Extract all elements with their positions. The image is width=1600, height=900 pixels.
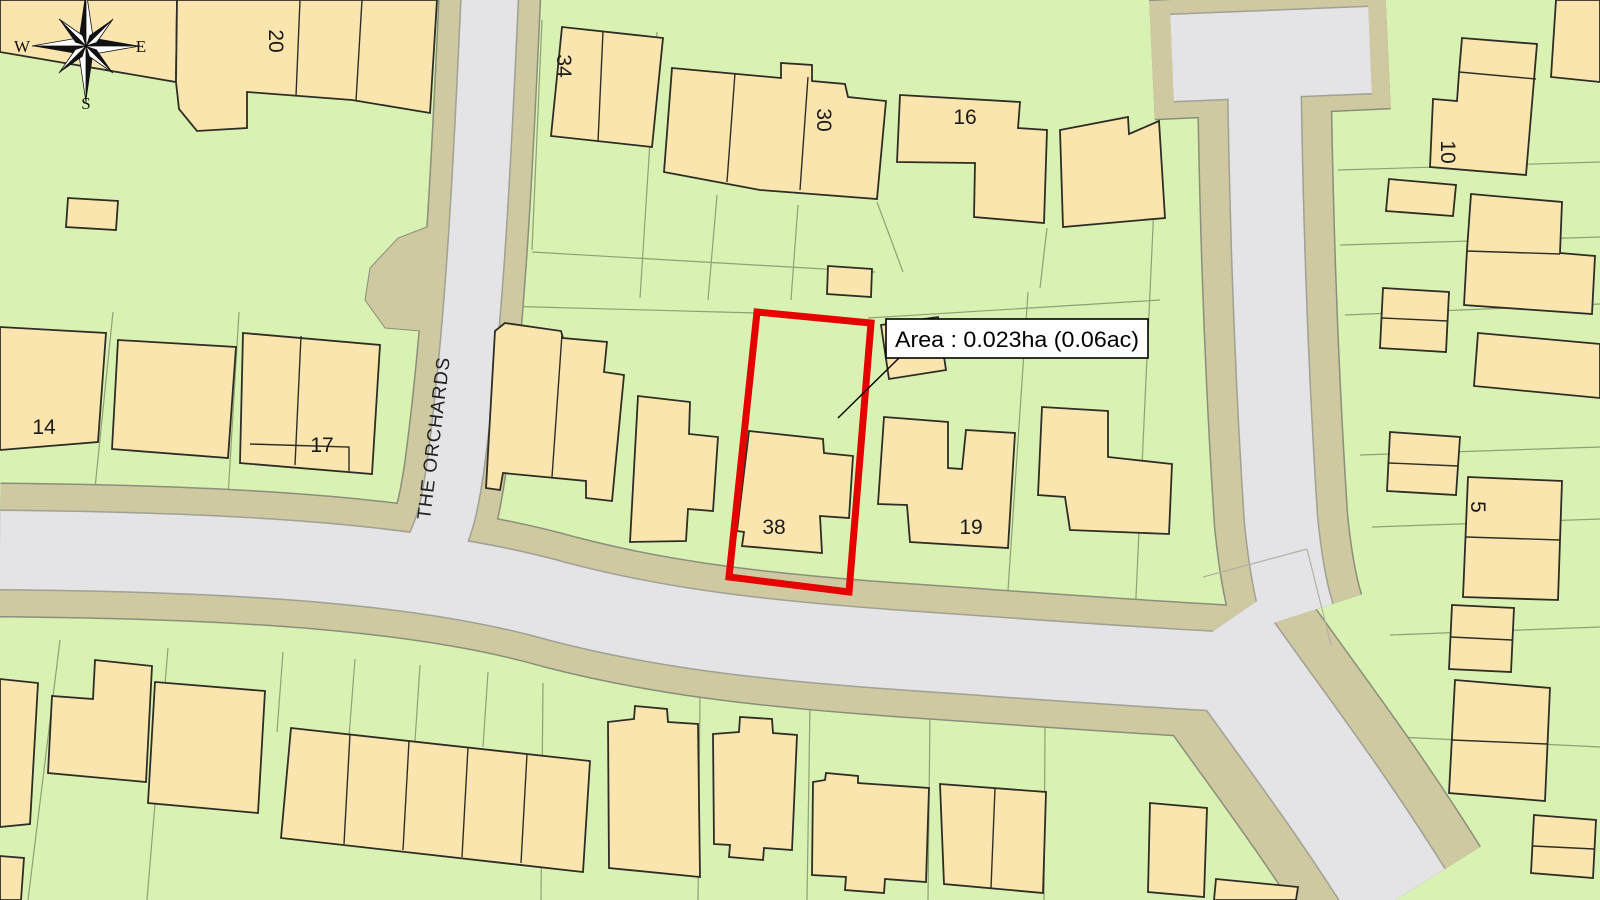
house-number-30: 30 <box>812 108 835 131</box>
house-number-17: 17 <box>310 434 333 457</box>
house-number-5: 5 <box>1466 501 1489 513</box>
house-number-38: 38 <box>762 516 785 539</box>
building-south-c <box>148 682 265 813</box>
building-south-d <box>608 706 700 877</box>
house-number-20: 20 <box>264 29 287 52</box>
building-east-of-16 <box>1060 117 1165 227</box>
house-number-34: 34 <box>552 54 575 78</box>
area-label-text: Area : 0.023ha (0.06ac) <box>895 327 1139 352</box>
compass-south-letter: S <box>81 94 90 113</box>
building-topright-corner <box>1551 0 1600 82</box>
house-number-16: 16 <box>953 106 976 129</box>
site-plan-map: Area : 0.023ha (0.06ac) THE ORCHARDS 20 … <box>0 0 1600 900</box>
site-plan-page: Area : 0.023ha (0.06ac) THE ORCHARDS 20 … <box>0 0 1600 900</box>
compass-west-letter: W <box>14 37 31 56</box>
culdesac-road-surface <box>1264 60 1298 615</box>
building-34 <box>551 27 663 147</box>
building-south-corner <box>0 856 24 900</box>
building-right-d <box>1474 333 1600 398</box>
building-south-e <box>713 717 797 860</box>
house-number-10: 10 <box>1436 140 1459 163</box>
house-number-14: 14 <box>32 416 56 439</box>
compass-east-letter: E <box>136 37 146 56</box>
building-outbuilding-north-of-plot <box>827 266 872 297</box>
building-right-a <box>1386 179 1456 216</box>
culdesac-head-surface <box>1172 50 1370 58</box>
building-south-f <box>812 773 929 893</box>
house-number-19: 19 <box>959 516 982 539</box>
building-small-west <box>66 198 118 230</box>
building-south-h <box>1148 803 1207 897</box>
building-mid-west <box>112 340 236 458</box>
